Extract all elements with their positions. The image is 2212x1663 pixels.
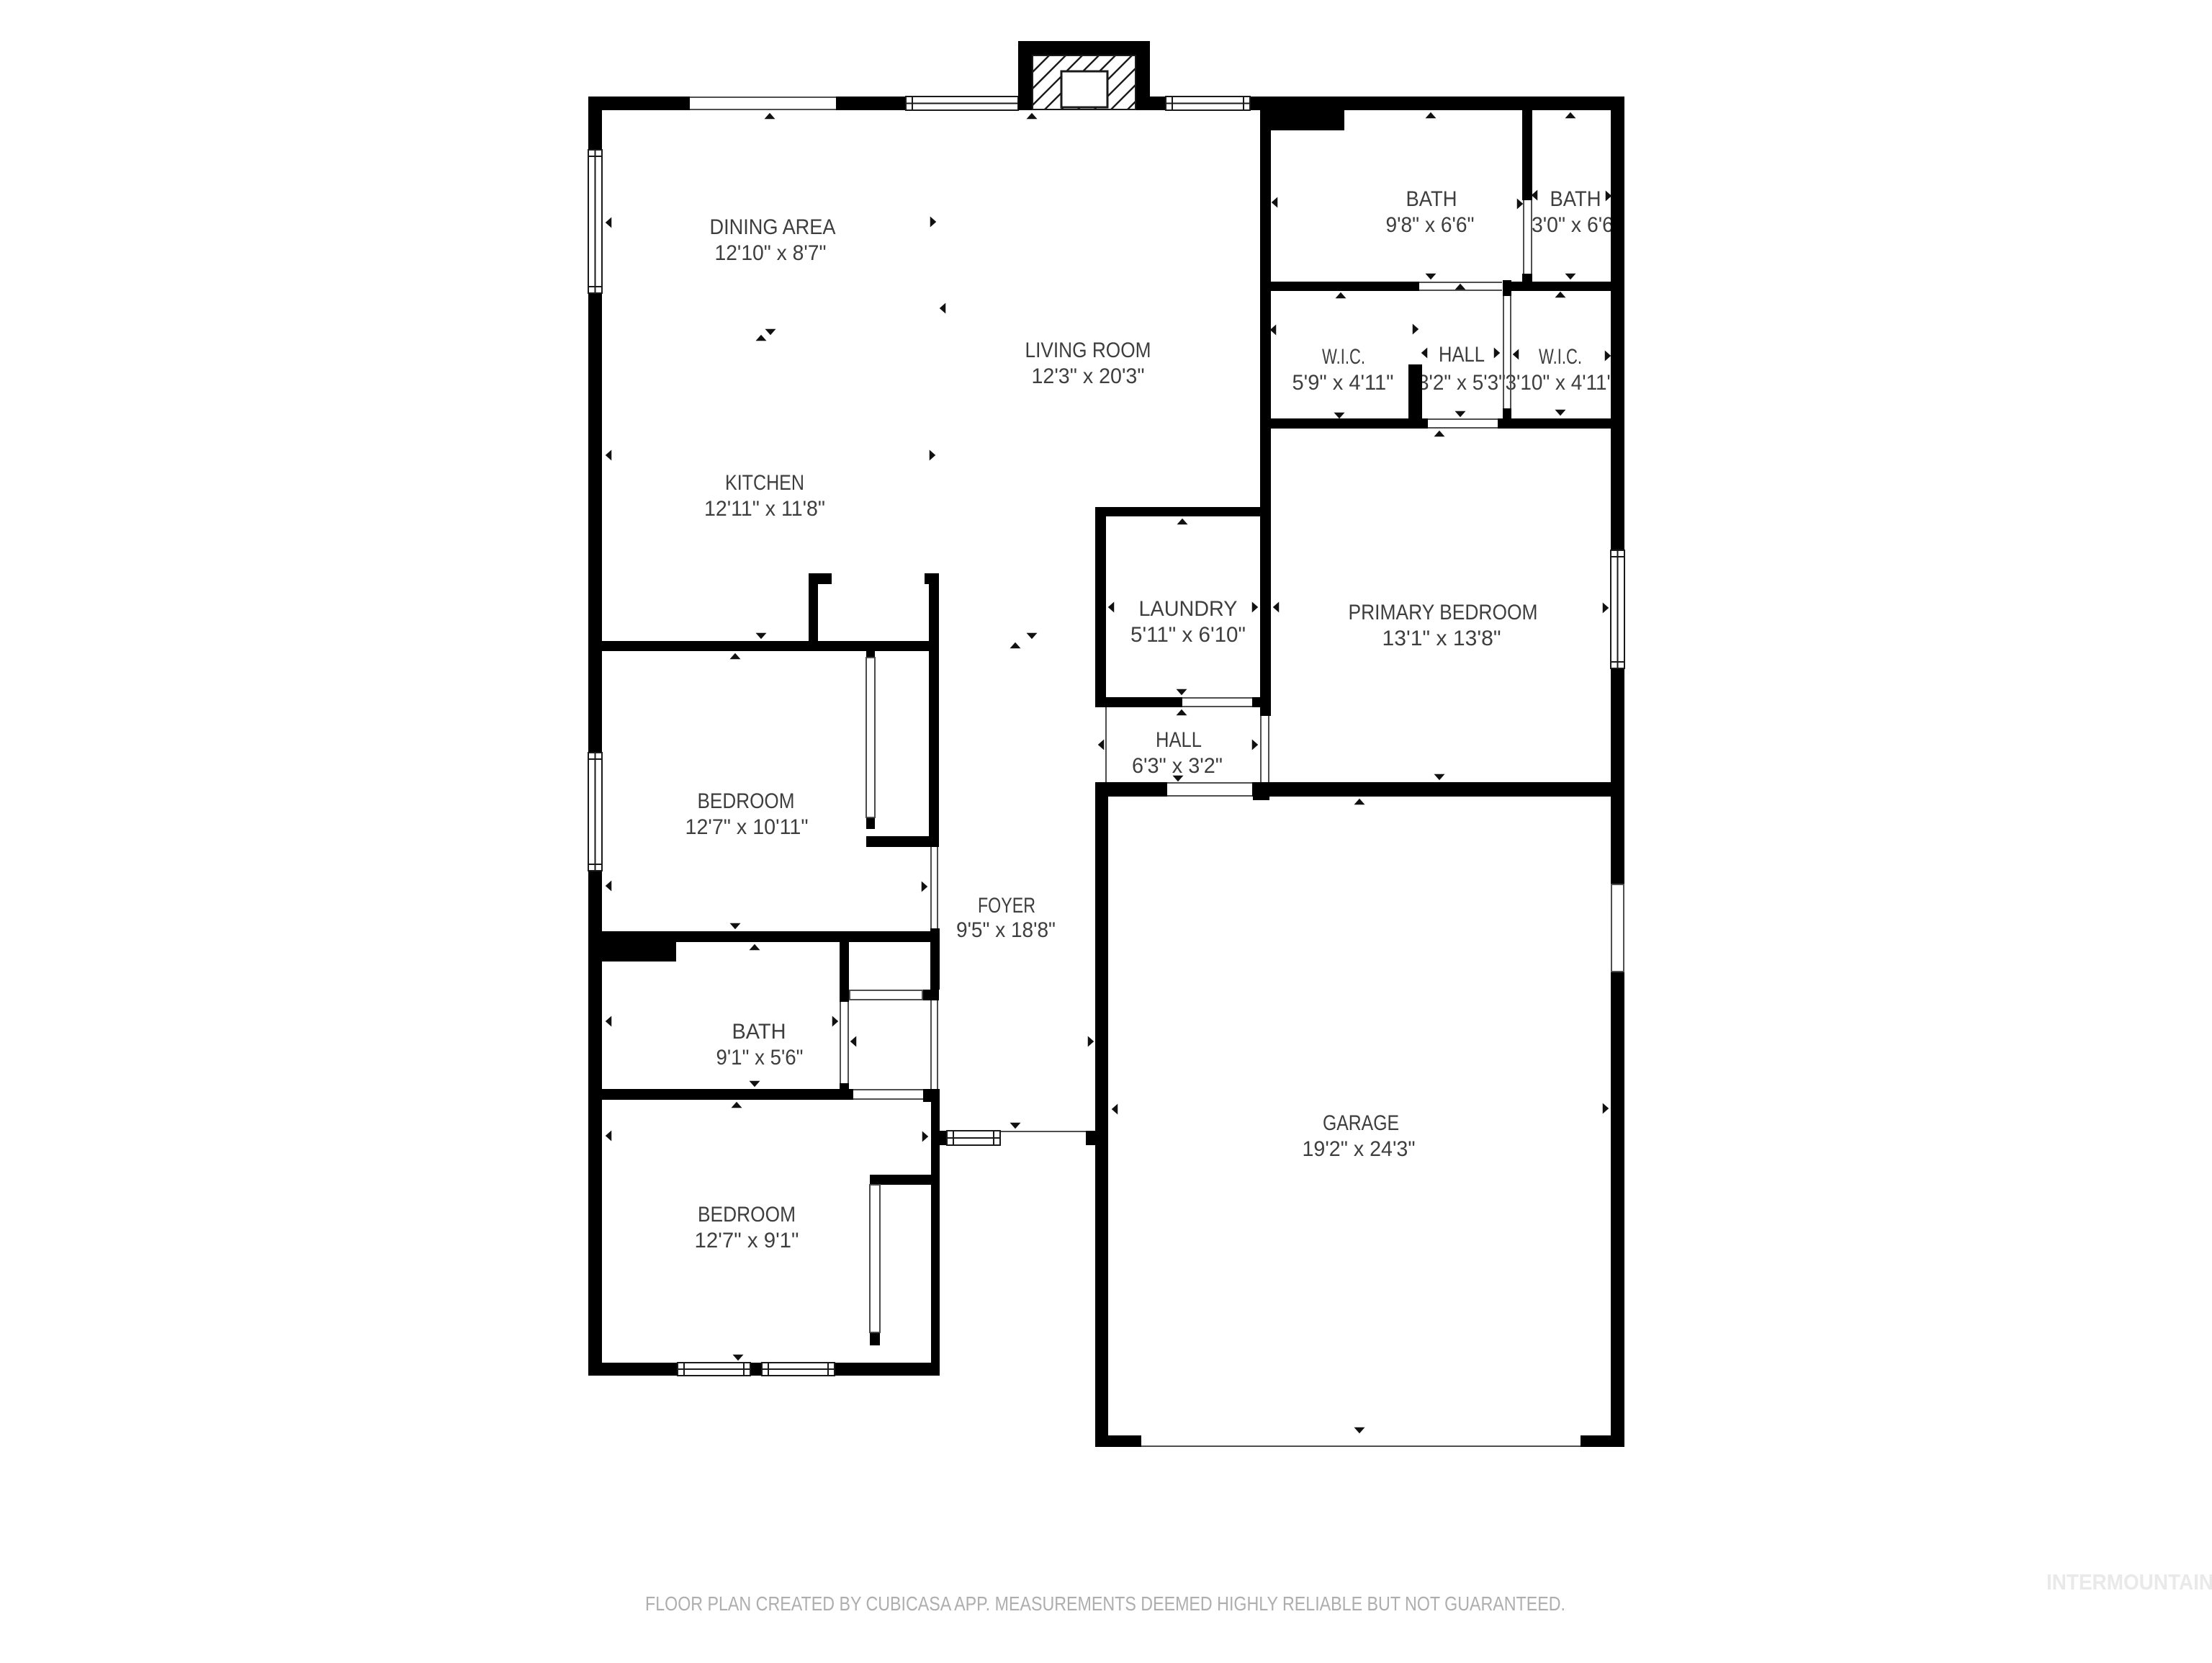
svg-text:PRIMARY BEDROOM: PRIMARY BEDROOM (1349, 601, 1538, 624)
svg-text:12'11" x 11'8": 12'11" x 11'8" (704, 497, 825, 521)
svg-text:BATH: BATH (1406, 187, 1457, 211)
svg-text:BEDROOM: BEDROOM (698, 789, 795, 813)
svg-text:BEDROOM: BEDROOM (698, 1203, 796, 1227)
svg-text:FOYER: FOYER (978, 894, 1035, 918)
svg-text:BATH: BATH (732, 1020, 786, 1044)
svg-text:3'2" x 5'3": 3'2" x 5'3" (1418, 371, 1506, 395)
svg-text:W.I.C.: W.I.C. (1539, 345, 1582, 369)
svg-text:BATH: BATH (1550, 187, 1601, 211)
svg-text:12'7" x 9'1": 12'7" x 9'1" (695, 1229, 799, 1252)
svg-text:19'2" x 24'3": 19'2" x 24'3" (1303, 1137, 1416, 1161)
svg-text:3'10" x 4'11": 3'10" x 4'11" (1506, 371, 1614, 395)
svg-text:12'3" x 20'3": 12'3" x 20'3" (1032, 364, 1145, 388)
svg-text:HALL: HALL (1439, 343, 1485, 367)
svg-text:5'11" x 6'10": 5'11" x 6'10" (1130, 623, 1246, 647)
svg-text:12'10" x 8'7": 12'10" x 8'7" (715, 241, 827, 265)
svg-text:INTERMOUNTAIN: INTERMOUNTAIN (2046, 1569, 2212, 1595)
svg-text:9'5" x 18'8": 9'5" x 18'8" (956, 918, 1056, 942)
svg-text:W.I.C.: W.I.C. (1322, 345, 1365, 369)
svg-text:5'9" x 4'11": 5'9" x 4'11" (1292, 371, 1394, 395)
svg-text:HALL: HALL (1156, 728, 1202, 752)
svg-text:DINING AREA: DINING AREA (710, 215, 836, 239)
svg-text:LIVING ROOM: LIVING ROOM (1025, 339, 1151, 362)
svg-text:3'0" x 6'6": 3'0" x 6'6" (1532, 213, 1621, 237)
svg-text:9'1" x 5'6": 9'1" x 5'6" (716, 1046, 804, 1070)
svg-text:GARAGE: GARAGE (1323, 1111, 1399, 1135)
svg-text:9'8" x 6'6": 9'8" x 6'6" (1386, 213, 1475, 237)
svg-text:12'7" x 10'11": 12'7" x 10'11" (685, 815, 809, 839)
svg-text:FLOOR PLAN CREATED BY CUBICASA: FLOOR PLAN CREATED BY CUBICASA APP. MEAS… (645, 1592, 1565, 1615)
svg-text:LAUNDRY: LAUNDRY (1139, 597, 1238, 621)
svg-text:13'1" x 13'8": 13'1" x 13'8" (1382, 627, 1501, 650)
svg-text:KITCHEN: KITCHEN (725, 471, 804, 495)
svg-text:6'3" x 3'2": 6'3" x 3'2" (1132, 754, 1223, 778)
